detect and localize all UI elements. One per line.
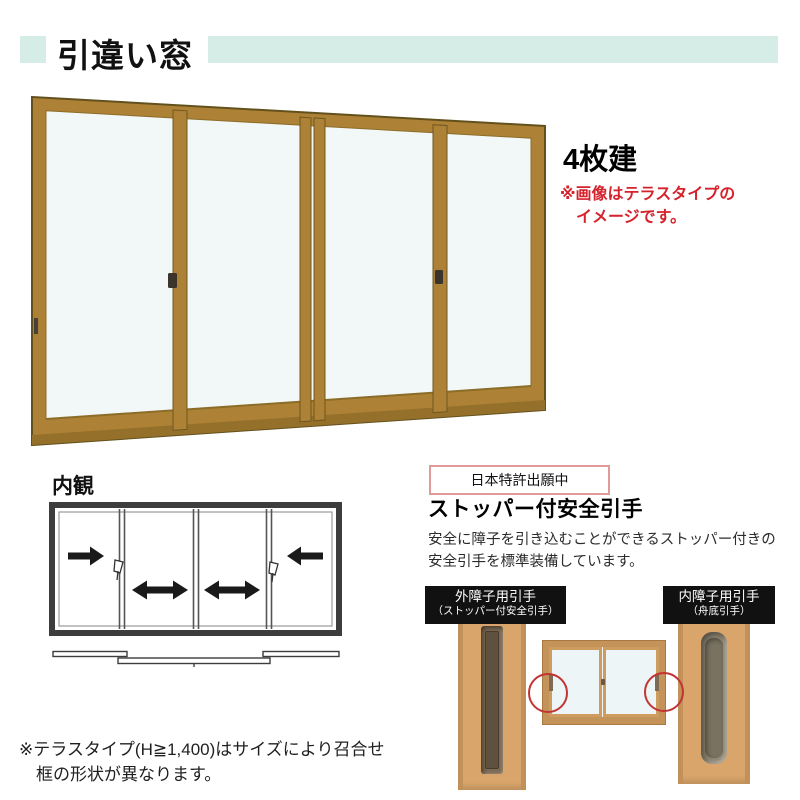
panel-count-label: 4枚建	[563, 136, 637, 178]
outer-handle-photo	[458, 601, 526, 790]
door-stile-wood	[678, 618, 750, 784]
patent-pending-badge: 日本特許出願中	[429, 465, 610, 495]
outer-handle-label-line2: （ストッパー付安全引手）	[425, 605, 566, 618]
terrace-type-note: ※テラスタイプ(H≧1,400)はサイズにより召合せ 框の形状が異なります。	[19, 737, 384, 787]
plan-view-tracks	[53, 652, 339, 668]
stile-meeting-left	[300, 117, 311, 422]
feature-heading: ストッパー付安全引手	[428, 493, 643, 523]
window-glass	[46, 111, 531, 419]
mini-window-lock-icon	[601, 679, 605, 685]
product-image-note-line2: イメージです。	[576, 206, 735, 229]
terrace-type-note-line2: 框の形状が異なります。	[36, 762, 384, 787]
title-accent-bar	[208, 36, 778, 63]
sash-handle-icon	[435, 270, 443, 284]
door-stile-wood	[458, 601, 526, 790]
sash-handle-icon	[168, 273, 177, 288]
product-image-note-line1: ※画像はテラスタイプの	[560, 183, 735, 206]
stile-panel3-4	[433, 125, 447, 413]
stile-meeting-right	[314, 118, 325, 421]
inner-handle-label-line1: 内障子用引手	[663, 588, 775, 605]
frame-pull-icon	[34, 318, 38, 334]
page-title: 引違い窓	[57, 29, 193, 77]
product-image-note: ※画像はテラスタイプの イメージです。	[560, 183, 735, 229]
interior-view-diagram	[30, 468, 360, 678]
diagram-outer-frame	[52, 505, 339, 633]
inner-handle-label-line2: （舟底引手）	[663, 605, 775, 618]
outer-handle-label: 外障子用引手 （ストッパー付安全引手）	[425, 586, 566, 624]
outer-handle-label-line1: 外障子用引手	[425, 588, 566, 605]
inner-handle-label: 内障子用引手 （舟底引手）	[663, 586, 775, 624]
inner-handle-photo	[678, 618, 750, 784]
feature-description-line2: 安全引手を標準装備しています。	[428, 552, 776, 574]
stopper-safety-pull-icon	[481, 626, 503, 774]
product-photo-sliding-window	[0, 80, 560, 460]
title-accent-square	[20, 36, 46, 63]
terrace-type-note-line1: ※テラスタイプ(H≧1,400)はサイズにより召合せ	[19, 737, 384, 762]
highlight-circle-left	[528, 673, 568, 713]
feature-description-line1: 安全に障子を引き込むことができるストッパー付きの	[428, 530, 776, 552]
boat-bottom-pull-icon	[701, 632, 727, 764]
highlight-circle-right	[644, 672, 684, 712]
stile-panel1-2	[173, 110, 187, 430]
feature-description: 安全に障子を引き込むことができるストッパー付きの 安全引手を標準装備しています。	[428, 530, 776, 573]
